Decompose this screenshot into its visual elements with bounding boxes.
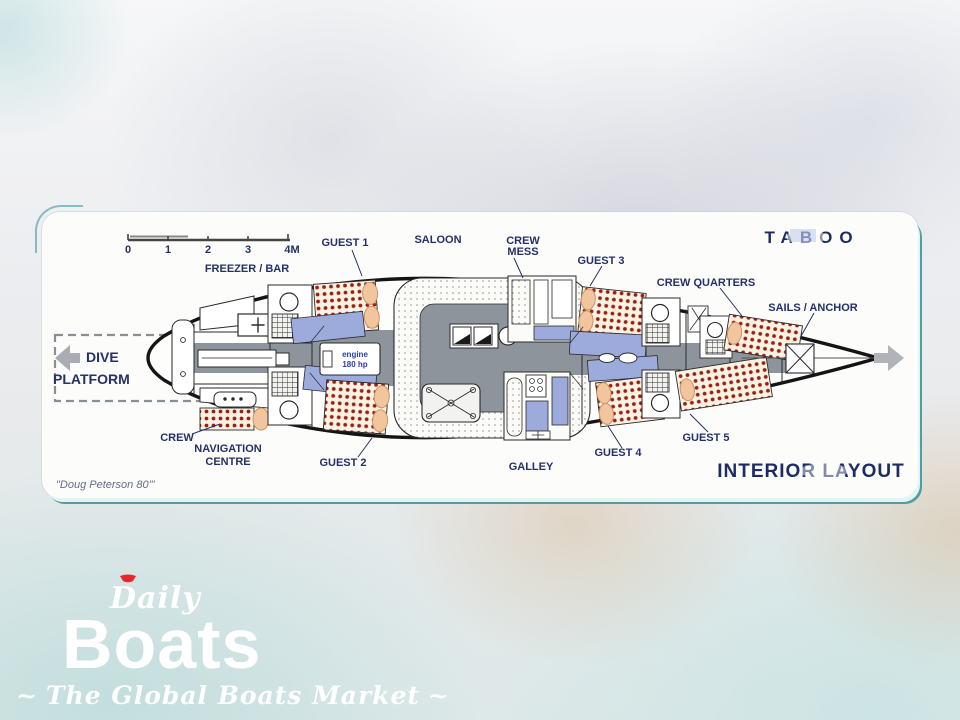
label-guest4: GUEST 4: [594, 447, 642, 459]
tagline-text: The Global Boats Market: [46, 681, 420, 710]
flourish-right-icon: ~: [420, 681, 458, 710]
scale-tick-4m: 4M: [284, 244, 299, 256]
engine-label-line2: 180 hp: [342, 360, 367, 369]
label-saloon: SALOON: [414, 234, 461, 246]
scale-tick-3: 3: [245, 244, 251, 256]
stern-arrow-icon: [55, 345, 80, 371]
label-nav-line2: CENTRE: [205, 456, 250, 468]
label-crew-mess-line2: MESS: [507, 246, 538, 258]
dailyboats-watermark: Daily Boats ~The Global Boats Market~: [62, 572, 458, 710]
scale-bar: 0 1 2 3 4M: [125, 234, 300, 256]
flourish-left-icon: ~: [8, 681, 46, 710]
bow-arrow-icon: [874, 345, 904, 371]
label-crew-quarters: CREW QUARTERS: [657, 277, 755, 289]
dive-label-line2: PLATFORM: [53, 371, 130, 387]
engine-label-line1: engine: [342, 350, 368, 359]
label-guest2: GUEST 2: [319, 457, 366, 469]
interior-arrangement: engine 180 hp: [172, 276, 876, 440]
interior-layout-drawing: DIVE PLATFORM: [42, 212, 918, 498]
dive-label-line1: DIVE: [86, 349, 119, 365]
label-guest3: GUEST 3: [577, 255, 624, 267]
scale-tick-0: 0: [125, 244, 131, 256]
boat-name-logo: TABOO: [764, 228, 859, 247]
label-guest1: GUEST 1: [321, 237, 368, 249]
scale-tick-1: 1: [165, 244, 171, 256]
layout-plan-card: DIVE PLATFORM: [42, 212, 918, 498]
plan-title-group: INTERIOR LAYOUT: [717, 461, 904, 482]
label-freezer-bar: FREEZER / BAR: [205, 263, 289, 275]
label-sails-anchor: SAILS / ANCHOR: [768, 302, 857, 314]
label-crew: CREW: [160, 432, 194, 444]
designer-signature: "Doug Peterson 80'": [56, 479, 156, 491]
label-galley: GALLEY: [509, 461, 554, 473]
brand-tagline: ~The Global Boats Market~: [8, 681, 458, 710]
label-guest5: GUEST 5: [682, 432, 729, 444]
brand-main: Boats: [62, 616, 458, 673]
label-nav-line1: NAVIGATION: [194, 443, 261, 455]
scale-tick-2: 2: [205, 244, 211, 256]
